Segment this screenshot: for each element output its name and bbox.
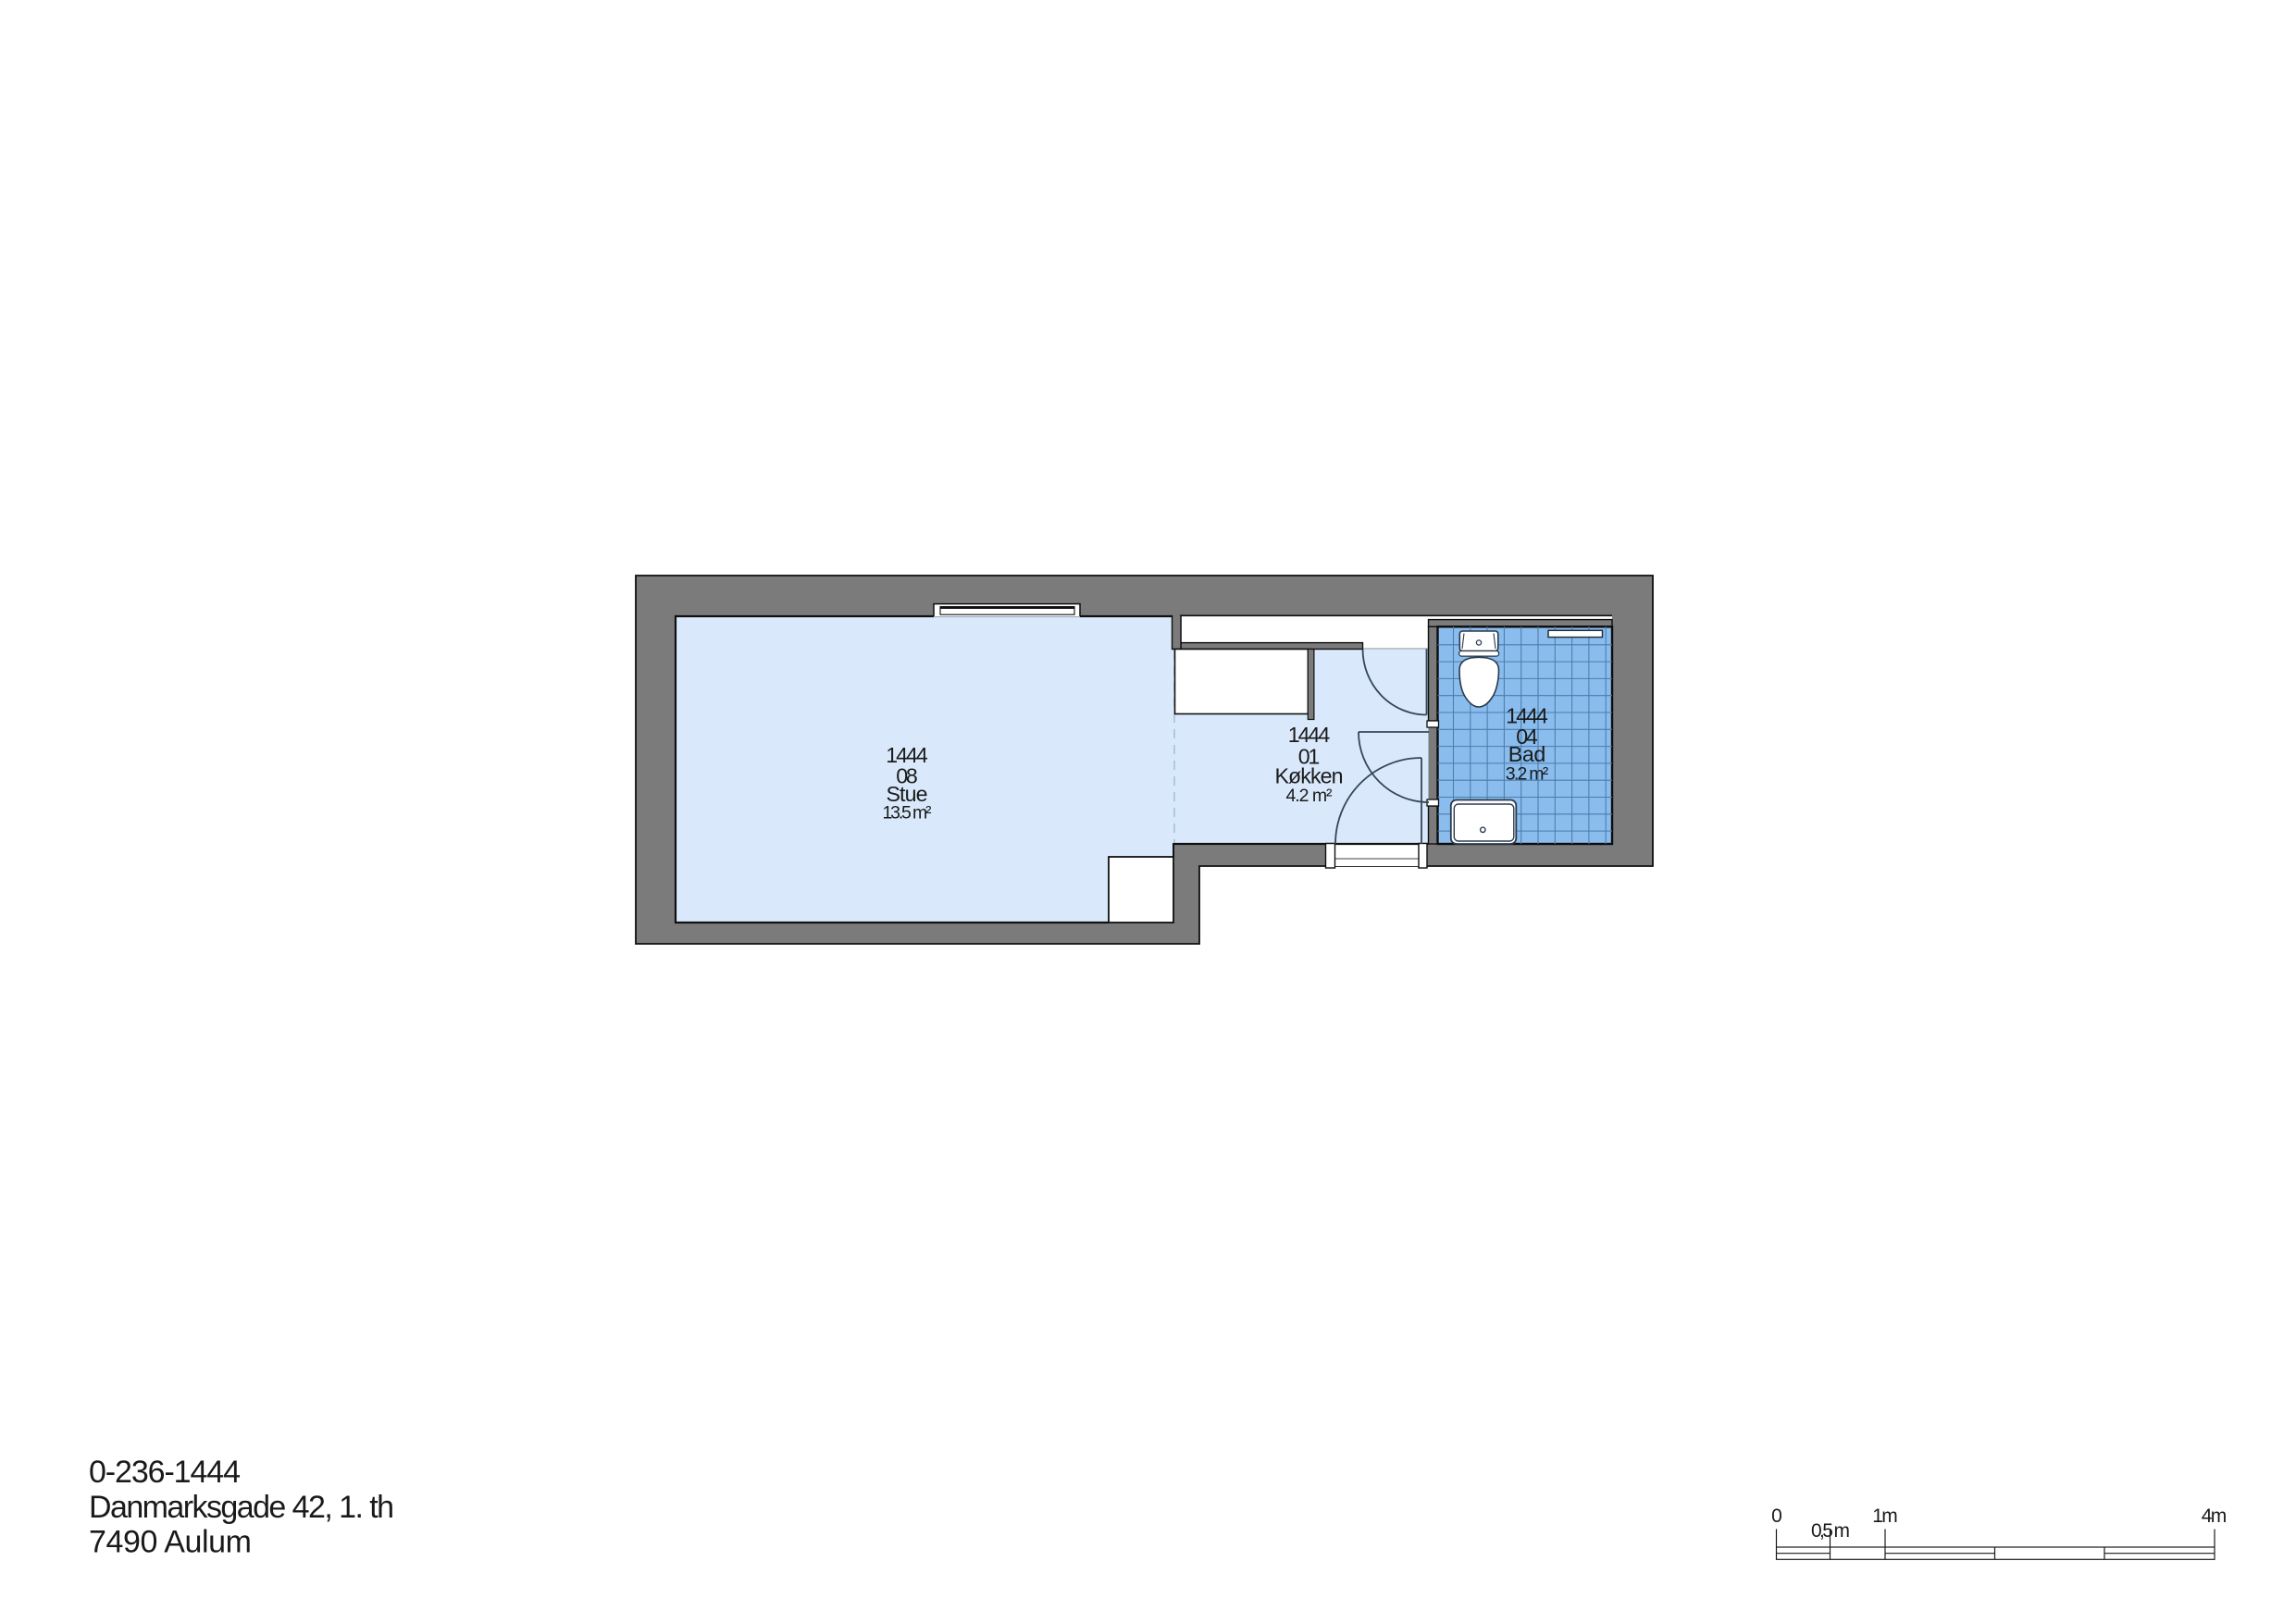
svg-text:4 m: 4 m <box>2202 1505 2228 1527</box>
svg-text:Bad: Bad <box>1508 742 1546 766</box>
svg-text:0-236-1444: 0-236-1444 <box>89 1455 241 1490</box>
svg-text:Danmarksgade 42, 1. th: Danmarksgade 42, 1. th <box>89 1490 394 1525</box>
svg-text:4.2 m²: 4.2 m² <box>1286 786 1334 806</box>
svg-text:1 m: 1 m <box>1872 1505 1898 1527</box>
svg-text:0: 0 <box>1771 1505 1782 1527</box>
svg-text:7490 Aulum: 7490 Aulum <box>89 1524 252 1559</box>
svg-text:13.5 m²: 13.5 m² <box>883 803 933 824</box>
svg-text:3.2 m²: 3.2 m² <box>1506 764 1549 785</box>
svg-text:1444: 1444 <box>1288 723 1331 747</box>
svg-text:Køkken: Køkken <box>1275 764 1344 788</box>
